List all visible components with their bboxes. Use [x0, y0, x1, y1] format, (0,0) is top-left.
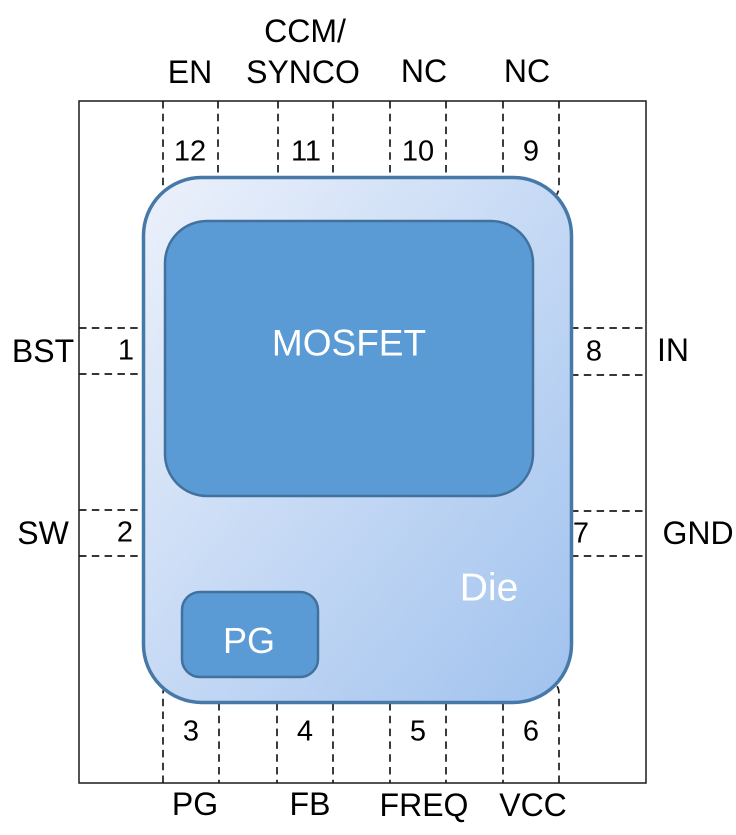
pin-8-number: 8: [586, 338, 602, 367]
pin-2-number: 2: [117, 519, 133, 548]
diagram-canvas: [0, 0, 736, 835]
pin-11-signal-label-line1: CCM/: [264, 15, 346, 47]
pin-2-signal-label: SW: [17, 517, 69, 549]
pin-3-signal-label: PG: [172, 788, 218, 820]
pin-5-signal-label: FREQ: [380, 789, 469, 821]
pin-8-signal-label: IN: [657, 334, 689, 366]
pg-block-label: PG: [223, 623, 275, 659]
pin-4-signal-label: FB: [290, 788, 331, 820]
pin-6-signal-label: VCC: [499, 789, 567, 821]
pin-10-signal-label: NC: [401, 55, 447, 87]
pin-7-signal-label: GND: [662, 517, 733, 549]
pin-5-number: 5: [410, 718, 426, 747]
pin-1-signal-label: BST: [12, 335, 74, 367]
pin-11-signal-label-line2: SYNCO: [246, 56, 360, 88]
pin-1-number: 1: [118, 337, 134, 366]
pin-6-number: 6: [523, 718, 539, 747]
pin-12-number: 12: [174, 138, 206, 167]
pin-7-number: 7: [573, 520, 589, 549]
pin-9-number: 9: [523, 138, 539, 167]
die-block-label: Die: [460, 569, 519, 608]
pin-3-number: 3: [183, 718, 199, 747]
pin-4-number: 4: [297, 718, 313, 747]
pin-9-signal-label: NC: [504, 55, 550, 87]
mosfet-block-label: MOSFET: [272, 325, 426, 362]
pin-11-number: 11: [291, 138, 321, 167]
pin-10-number: 10: [402, 138, 434, 167]
pinout-diagram: MOSFET Die PG EN CCM/ SYNCO NC NC BST SW…: [0, 0, 736, 835]
pin-12-signal-label: EN: [168, 56, 212, 88]
